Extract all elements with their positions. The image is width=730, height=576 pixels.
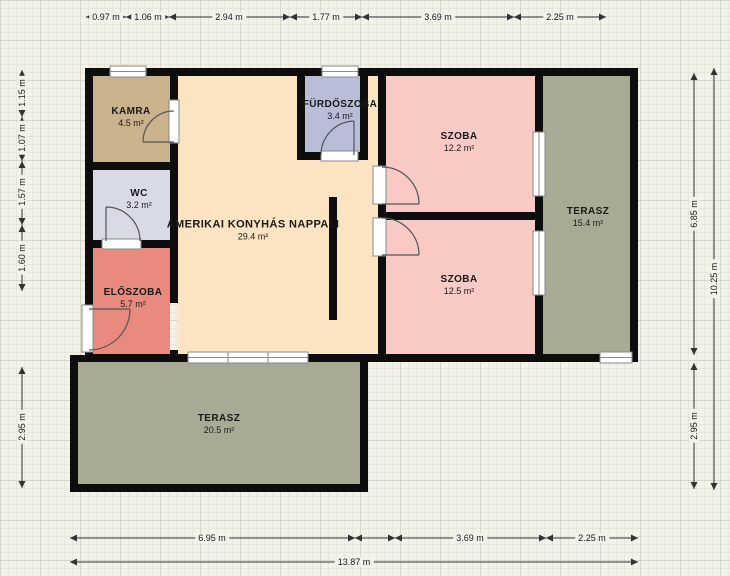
dim-bottom-1: 6.95 m bbox=[195, 533, 229, 543]
door-szoba-also bbox=[373, 218, 386, 256]
wall-terasz-also-right bbox=[360, 355, 368, 492]
wall-kamra-wc bbox=[85, 162, 178, 170]
window-furdoszoba-top bbox=[322, 66, 358, 77]
dim-bottom-total: 13.87 m bbox=[335, 557, 374, 567]
door-entry bbox=[82, 305, 93, 352]
wall-nappali-szoba-c bbox=[378, 256, 386, 362]
wall-nappali-szoba-a bbox=[378, 68, 386, 166]
room-name: AMERIKAI KONYHÁS NAPPALI bbox=[167, 219, 340, 232]
window-nappali-terasz bbox=[188, 352, 308, 363]
room-area: 3.4 m² bbox=[303, 111, 378, 121]
door-furdoszoba bbox=[321, 151, 358, 161]
dim-right-total: 10.25 m bbox=[709, 260, 719, 299]
room-label-terasz-jobb: TERASZ 15.4 m² bbox=[567, 206, 609, 228]
floor-plan: KAMRA 4.5 m² WC 3.2 m² ELŐSZOBA 5.7 m² A… bbox=[0, 0, 730, 576]
dim-left-2: 1.07 m bbox=[17, 121, 27, 155]
wall-terasz-also-top-stub bbox=[70, 355, 85, 362]
room-area: 3.2 m² bbox=[126, 200, 152, 210]
dim-top-6: 2.25 m bbox=[543, 12, 577, 22]
room-label-furdoszoba: FÜRDŐSZOBA 3.4 m² bbox=[303, 99, 378, 121]
dim-right-2: 2.95 m bbox=[689, 409, 699, 443]
dim-left-5: 2.95 m bbox=[17, 410, 27, 444]
room-area: 12.5 m² bbox=[441, 286, 478, 296]
dim-left-4: 1.60 m bbox=[17, 241, 27, 275]
dim-top-4: 1.77 m bbox=[309, 12, 343, 22]
room-area: 12.2 m² bbox=[441, 143, 478, 153]
room-area: 29.4 m² bbox=[167, 231, 340, 241]
room-area: 4.5 m² bbox=[111, 118, 150, 128]
dim-top-2: 1.06 m bbox=[131, 12, 165, 22]
dim-top-1: 0.97 m bbox=[89, 12, 123, 22]
wall-kamra-nappali-a bbox=[170, 68, 178, 100]
wall-szoba-terasz bbox=[535, 68, 543, 362]
room-label-szoba-felso: SZOBA 12.2 m² bbox=[441, 131, 478, 153]
room-name: WC bbox=[126, 188, 152, 200]
room-label-terasz-also: TERASZ 20.5 m² bbox=[198, 413, 240, 435]
window-kamra-top bbox=[110, 66, 146, 77]
wall-wc-eloszoba-a bbox=[85, 240, 102, 248]
room-area: 5.7 m² bbox=[104, 299, 163, 309]
room-name: FÜRDŐSZOBA bbox=[303, 99, 378, 111]
room-label-kamra: KAMRA 4.5 m² bbox=[111, 106, 150, 128]
wall-terasz-also-bottom bbox=[70, 484, 368, 492]
wall-left-upper bbox=[85, 68, 93, 305]
dim-left-1: 1.15 m bbox=[17, 76, 27, 110]
dim-bottom-3: 2.25 m bbox=[575, 533, 609, 543]
door-szoba-felso bbox=[373, 166, 386, 204]
room-label-szoba-also: SZOBA 12.5 m² bbox=[441, 274, 478, 296]
door-kamra bbox=[169, 100, 179, 143]
room-name: ELŐSZOBA bbox=[104, 287, 163, 299]
wall-terasz-also-left bbox=[70, 355, 78, 492]
room-label-eloszoba: ELŐSZOBA 5.7 m² bbox=[104, 287, 163, 309]
kitchen-partition bbox=[329, 197, 337, 320]
wall-furdoszoba-bottom-a bbox=[297, 152, 321, 160]
wall-kamra-nappali-c bbox=[170, 350, 178, 362]
room-name: TERASZ bbox=[567, 206, 609, 218]
room-label-wc: WC 3.2 m² bbox=[126, 188, 152, 210]
room-name: SZOBA bbox=[441, 274, 478, 286]
room-name: KAMRA bbox=[111, 106, 150, 118]
dim-top-5: 3.69 m bbox=[421, 12, 455, 22]
wall-szoba-szoba bbox=[378, 212, 543, 220]
room-label-nappali: AMERIKAI KONYHÁS NAPPALI 29.4 m² bbox=[167, 219, 340, 242]
room-area: 15.4 m² bbox=[567, 218, 609, 228]
window-szoba-also-terasz bbox=[533, 231, 545, 295]
dim-right-1: 6.85 m bbox=[689, 197, 699, 231]
room-name: SZOBA bbox=[441, 131, 478, 143]
room-area: 20.5 m² bbox=[198, 425, 240, 435]
door-wc bbox=[102, 239, 141, 249]
wall-right bbox=[630, 68, 638, 362]
dim-bottom-2: 3.69 m bbox=[453, 533, 487, 543]
dim-left-3: 1.57 m bbox=[17, 175, 27, 209]
room-name: TERASZ bbox=[198, 413, 240, 425]
dim-top-3: 2.94 m bbox=[212, 12, 246, 22]
window-szoba-felso-terasz bbox=[533, 132, 545, 196]
window-terasz-jobb-bottom bbox=[600, 352, 632, 363]
